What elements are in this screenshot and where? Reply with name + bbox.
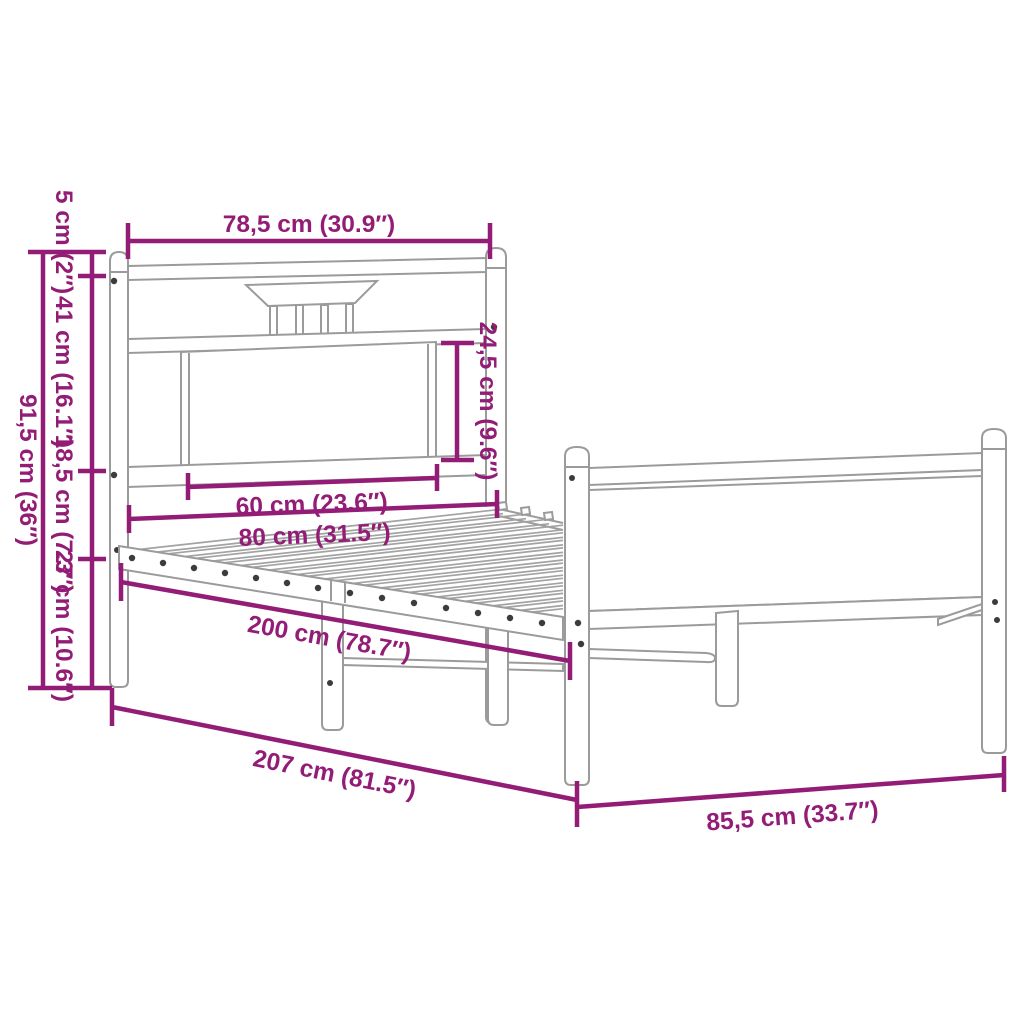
dim-total-length-label: 207 cm (81.5″)	[251, 745, 419, 804]
diagram-canvas: 78,5 cm (30.9″) 91,5 cm (36″) 5 cm (2″) …	[0, 0, 1024, 1024]
dim-post-cap-label: 5 cm (2″)	[50, 190, 77, 294]
footboard-near-post	[565, 447, 589, 785]
dim-clearance-label: 27 cm (10.6″)	[50, 550, 77, 702]
dim-headboard-width-label: 78,5 cm (30.9″)	[223, 211, 395, 238]
dim-panel-height-label: 24,5 cm (9.6″)	[474, 322, 501, 481]
footboard-far-post	[982, 429, 1006, 753]
dim-headboard-segments: 5 cm (2″) 41 cm (16.1″) 18,5 cm (7.3″) 2…	[50, 190, 106, 702]
headboard	[128, 258, 486, 487]
dim-total-height-label: 91,5 cm (36″)	[14, 394, 41, 546]
dim-footboard-width-label: 85,5 cm (33.7″)	[705, 797, 879, 837]
headboard-near-post	[110, 252, 128, 687]
dim-footboard-width: 85,5 cm (33.7″)	[577, 756, 1004, 836]
bed-frame-dimension-diagram: 78,5 cm (30.9″) 91,5 cm (36″) 5 cm (2″) …	[0, 0, 1024, 1024]
footboard	[565, 429, 1006, 785]
dim-upper-height-label: 41 cm (16.1″)	[50, 296, 77, 448]
dim-headboard-width: 78,5 cm (30.9″)	[128, 211, 490, 259]
